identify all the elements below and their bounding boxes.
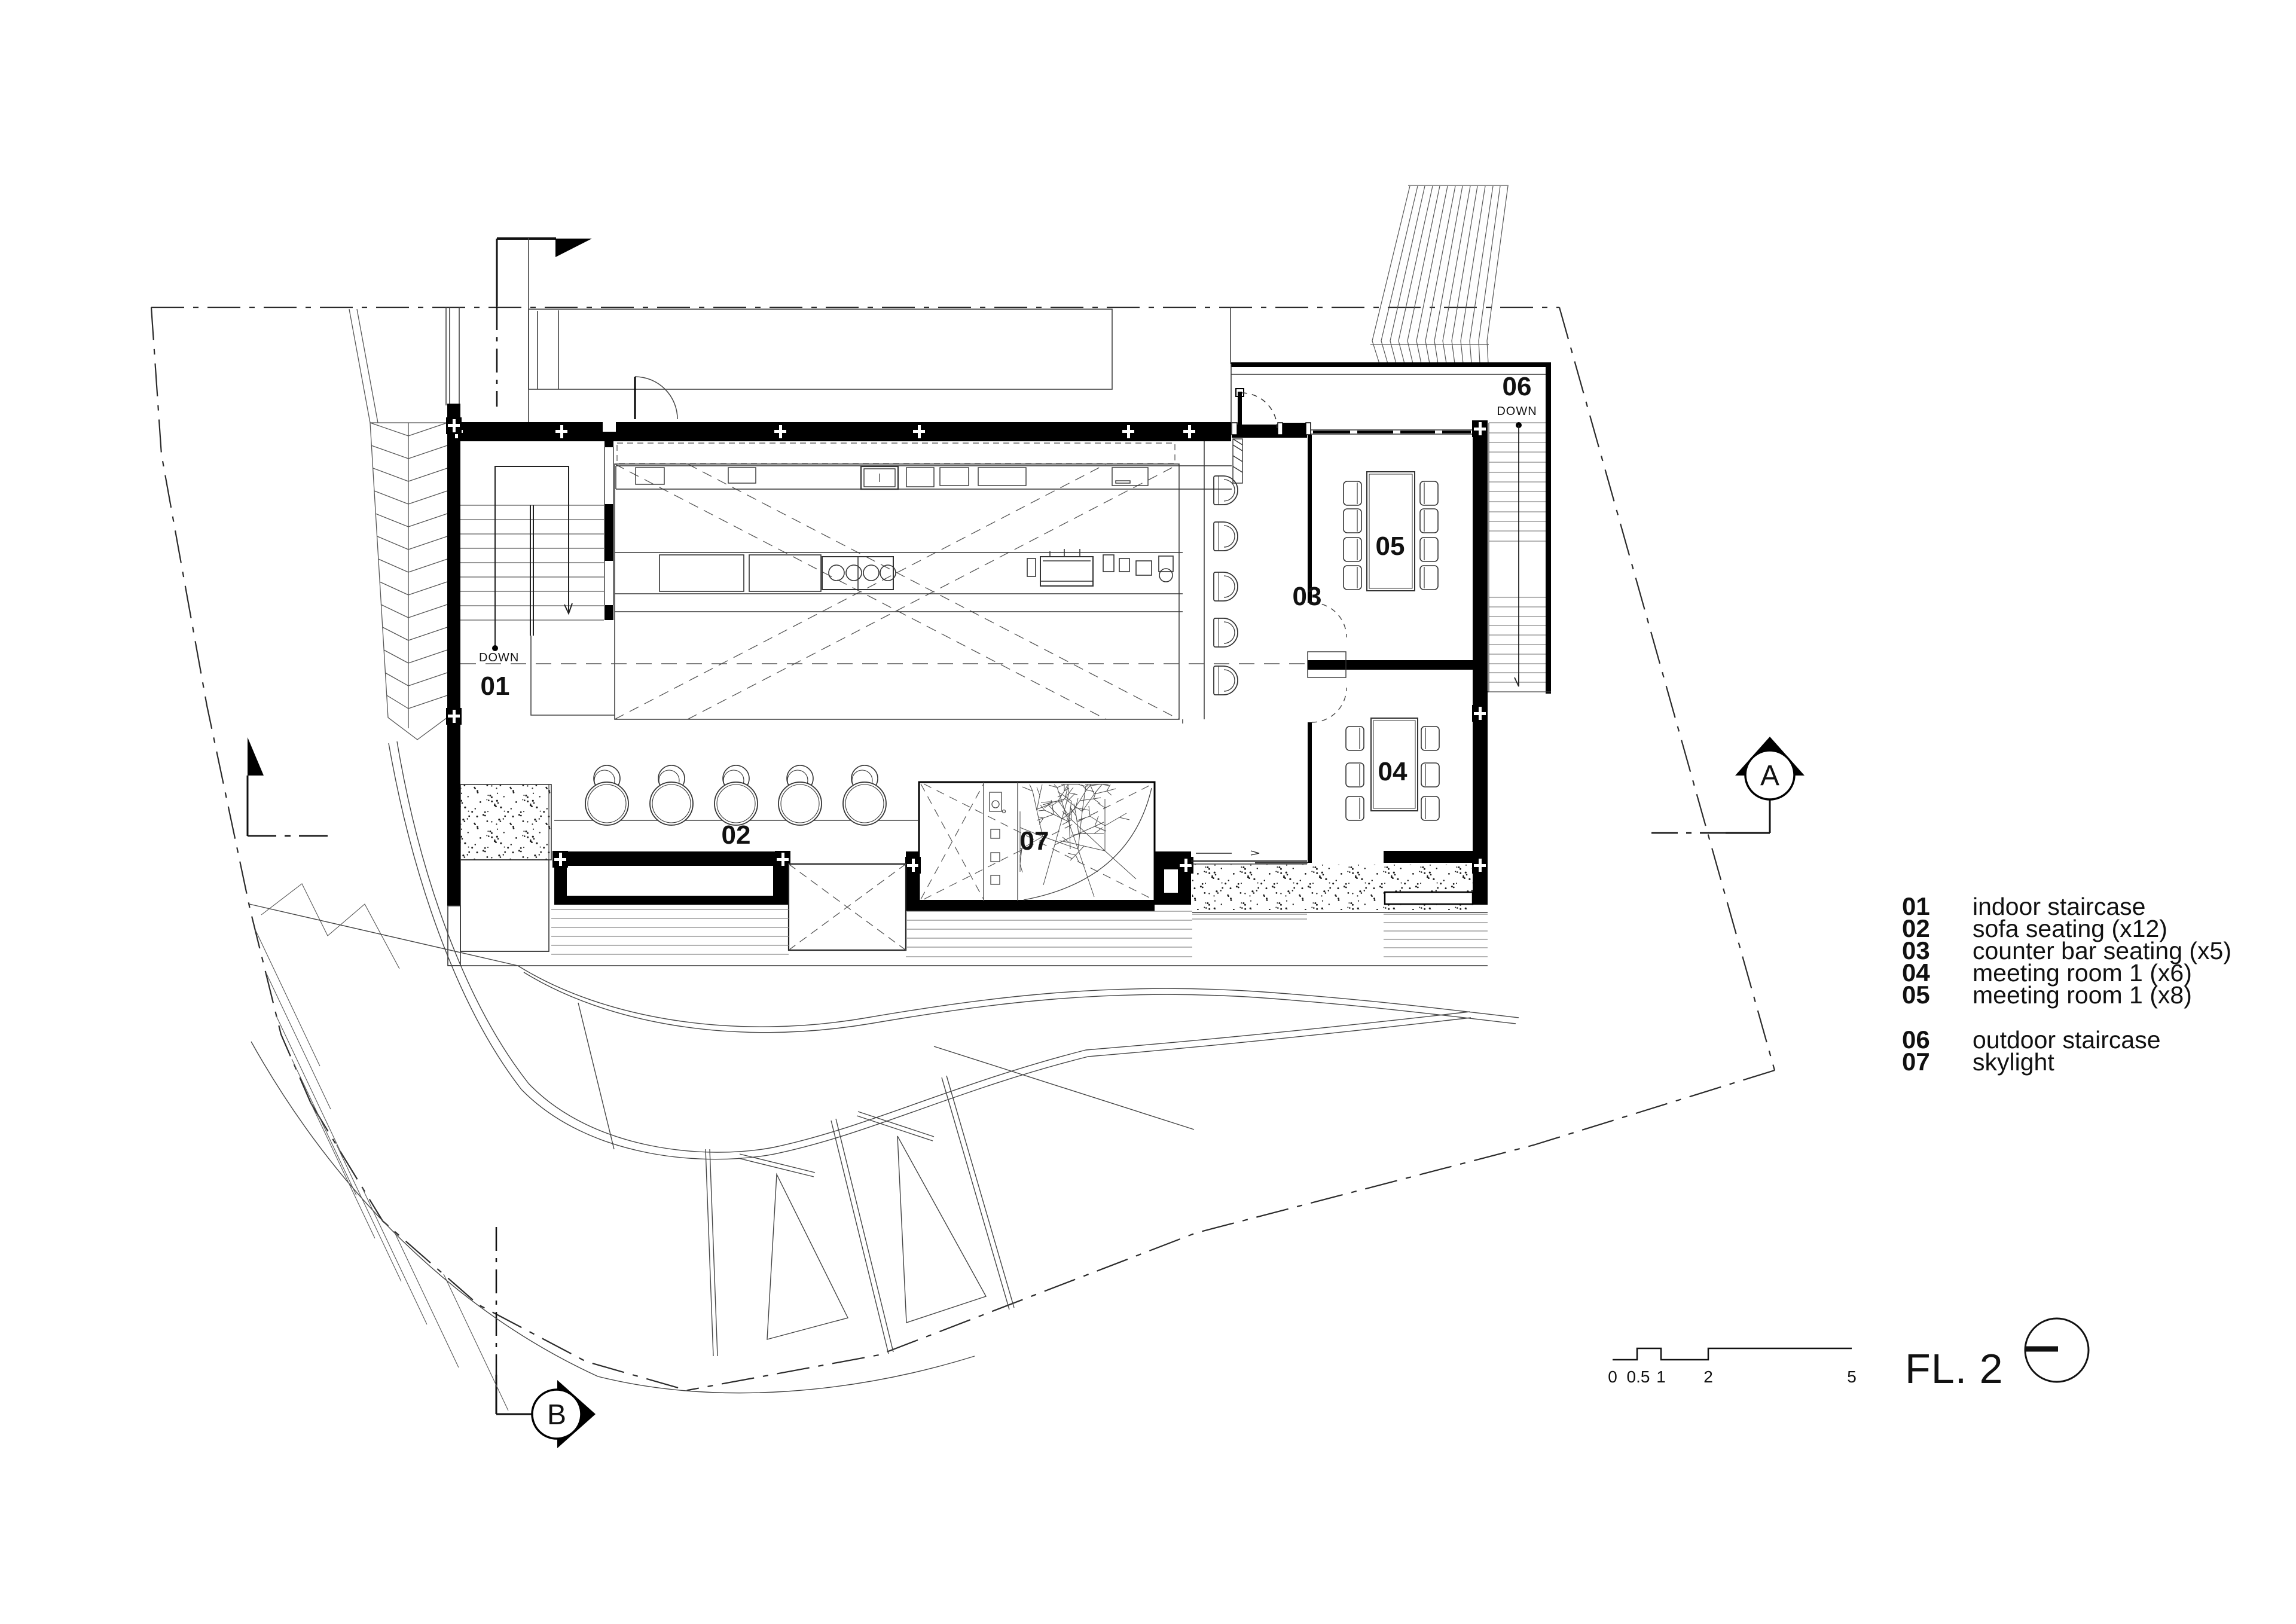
svg-text:DOWN: DOWN [479, 651, 519, 664]
svg-text:0: 0 [1608, 1367, 1617, 1386]
svg-text:02: 02 [722, 820, 751, 850]
svg-text:1: 1 [1656, 1367, 1666, 1386]
svg-text:0.5: 0.5 [1627, 1367, 1650, 1386]
svg-text:07: 07 [1020, 826, 1049, 856]
svg-text:5: 5 [1847, 1367, 1857, 1386]
svg-text:03: 03 [1293, 582, 1322, 611]
svg-text:06: 06 [1503, 372, 1532, 401]
svg-text:05: 05 [1376, 532, 1405, 561]
svg-text:A: A [1760, 760, 1779, 792]
svg-text:DOWN: DOWN [1497, 405, 1537, 418]
svg-text:meeting room 1 (x8): meeting room 1 (x8) [1973, 981, 2192, 1009]
svg-text:2: 2 [1703, 1367, 1713, 1386]
svg-text:07: 07 [1902, 1048, 1930, 1076]
svg-text:FL. 2: FL. 2 [1905, 1345, 2004, 1392]
svg-text:01: 01 [481, 671, 510, 701]
svg-text:04: 04 [1378, 757, 1407, 786]
svg-text:05: 05 [1902, 981, 1930, 1009]
svg-text:B: B [547, 1399, 566, 1431]
svg-text:skylight: skylight [1973, 1048, 2054, 1076]
